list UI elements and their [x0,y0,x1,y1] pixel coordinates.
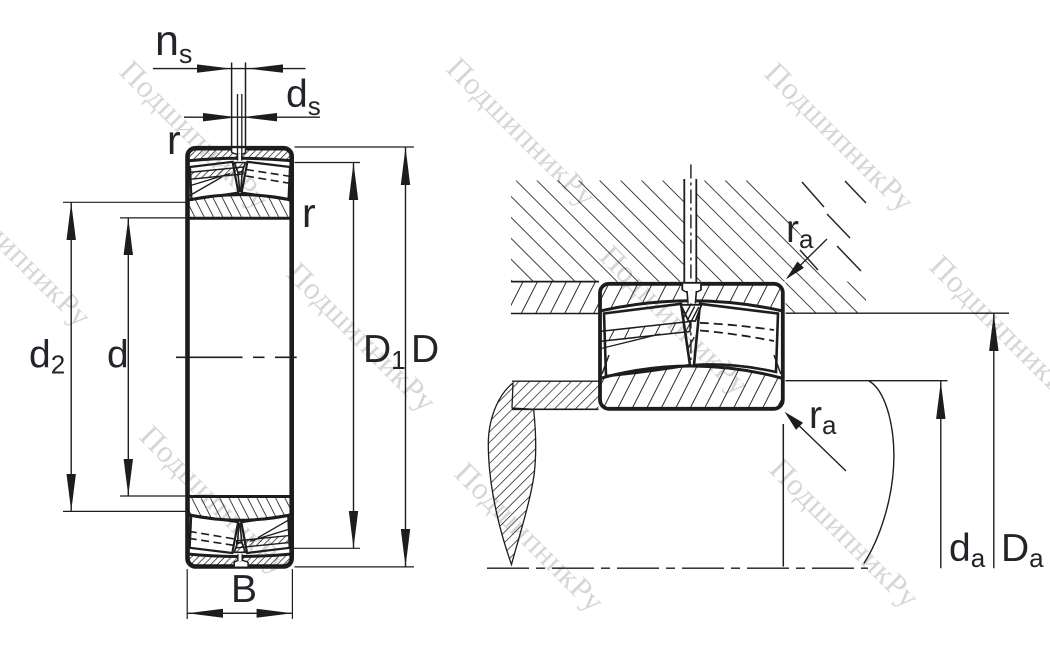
svg-text:D: D [411,328,439,371]
svg-text:B: B [231,568,257,611]
svg-text:r: r [167,117,181,163]
svg-text:d: d [107,334,129,377]
svg-text:r: r [302,190,316,236]
